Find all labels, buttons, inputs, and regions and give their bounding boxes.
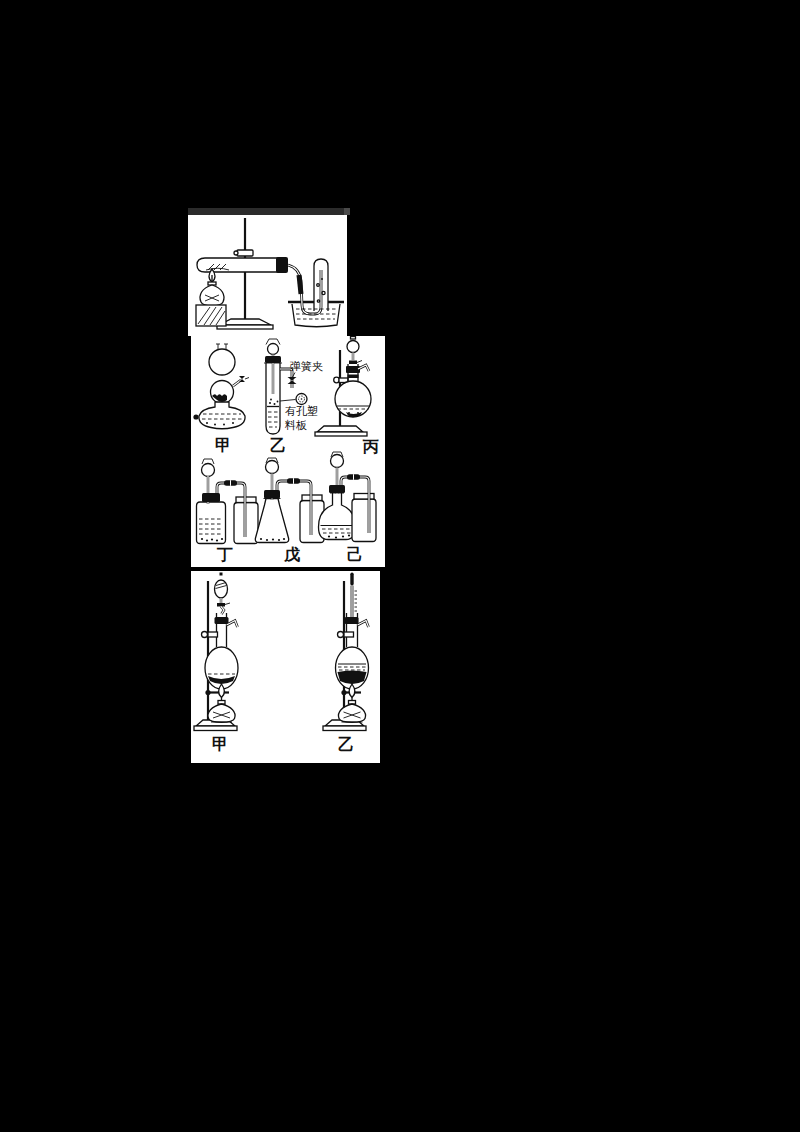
figure2-label-ji: 己: [347, 547, 363, 563]
figure3-label-jia: 甲: [212, 737, 228, 753]
rubber-stopper-icon: [265, 356, 281, 363]
spring-clamp-icon: [288, 377, 297, 384]
figure3-label-yi: 乙: [338, 737, 354, 753]
rubber-stopper-icon: [276, 257, 288, 273]
figure2-panel: 弹簧夹 有孔塑 料板 甲 乙 丙 丁 戊 己: [191, 336, 385, 567]
flame-icon: [219, 684, 225, 698]
conical-flask-generator-icon: [255, 458, 324, 543]
figure1-header-bar: [188, 208, 350, 215]
wide-mouth-bottle-generator-icon: [197, 459, 259, 544]
alcohol-lamp-icon: [338, 704, 365, 722]
rubber-stopper-icon: [215, 617, 229, 624]
rubber-stopper-icon: [202, 493, 220, 502]
rubber-connector-icon: [299, 275, 301, 294]
figure3-panel: 甲 乙: [191, 571, 380, 763]
figure2-label-jia: 甲: [215, 438, 231, 454]
rubber-stopper-icon: [329, 485, 345, 493]
alcohol-lamp-icon: [208, 704, 235, 722]
rubber-stopper-icon: [345, 617, 359, 624]
flame-icon: [349, 684, 355, 698]
rubber-stopper-icon: [264, 490, 280, 499]
figure2-label-bing: 丙: [363, 439, 379, 455]
figure1-panel: [188, 215, 347, 336]
flat-bottom-flask-generator-icon: [319, 452, 377, 542]
perforated-plate-icon: [296, 394, 307, 405]
document-page: { "canvas": { "background": "#000000", "…: [0, 0, 800, 1132]
distillation-setup-separating-funnel-icon: [194, 573, 238, 731]
flask-on-stand-icon: [315, 337, 371, 437]
spring-clamp-annotation: 弹簧夹: [290, 361, 323, 374]
figure2-label-ding: 丁: [217, 547, 233, 563]
rubber-stopper-icon: [346, 366, 360, 373]
kipp-generator-icon: [193, 344, 249, 429]
gas-bottle-icon: [352, 499, 376, 542]
distillation-setup-thermometer-icon: [323, 573, 369, 731]
alcohol-lamp-icon: [200, 269, 224, 306]
perforated-plate-annotation-line1: 有孔塑: [285, 406, 318, 419]
figure2-label-wu: 戊: [284, 547, 300, 563]
perforated-plate-annotation-line2: 料板: [285, 420, 307, 433]
wood-block-icon: [196, 305, 226, 326]
thermometer-icon: [350, 573, 357, 624]
figure1-drawing: [188, 215, 347, 336]
figure2-label-yi: 乙: [270, 438, 286, 454]
